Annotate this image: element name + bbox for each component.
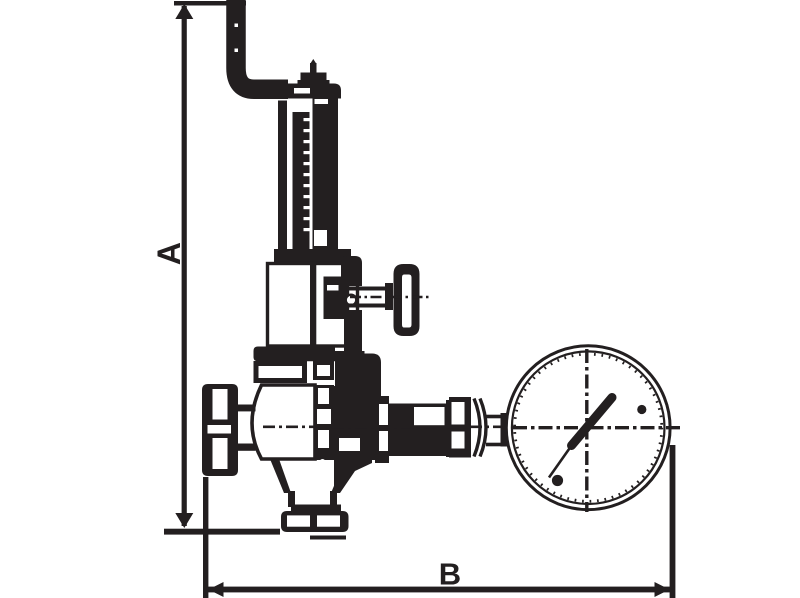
svg-text:B: B bbox=[439, 556, 461, 591]
svg-text:A: A bbox=[151, 242, 187, 265]
